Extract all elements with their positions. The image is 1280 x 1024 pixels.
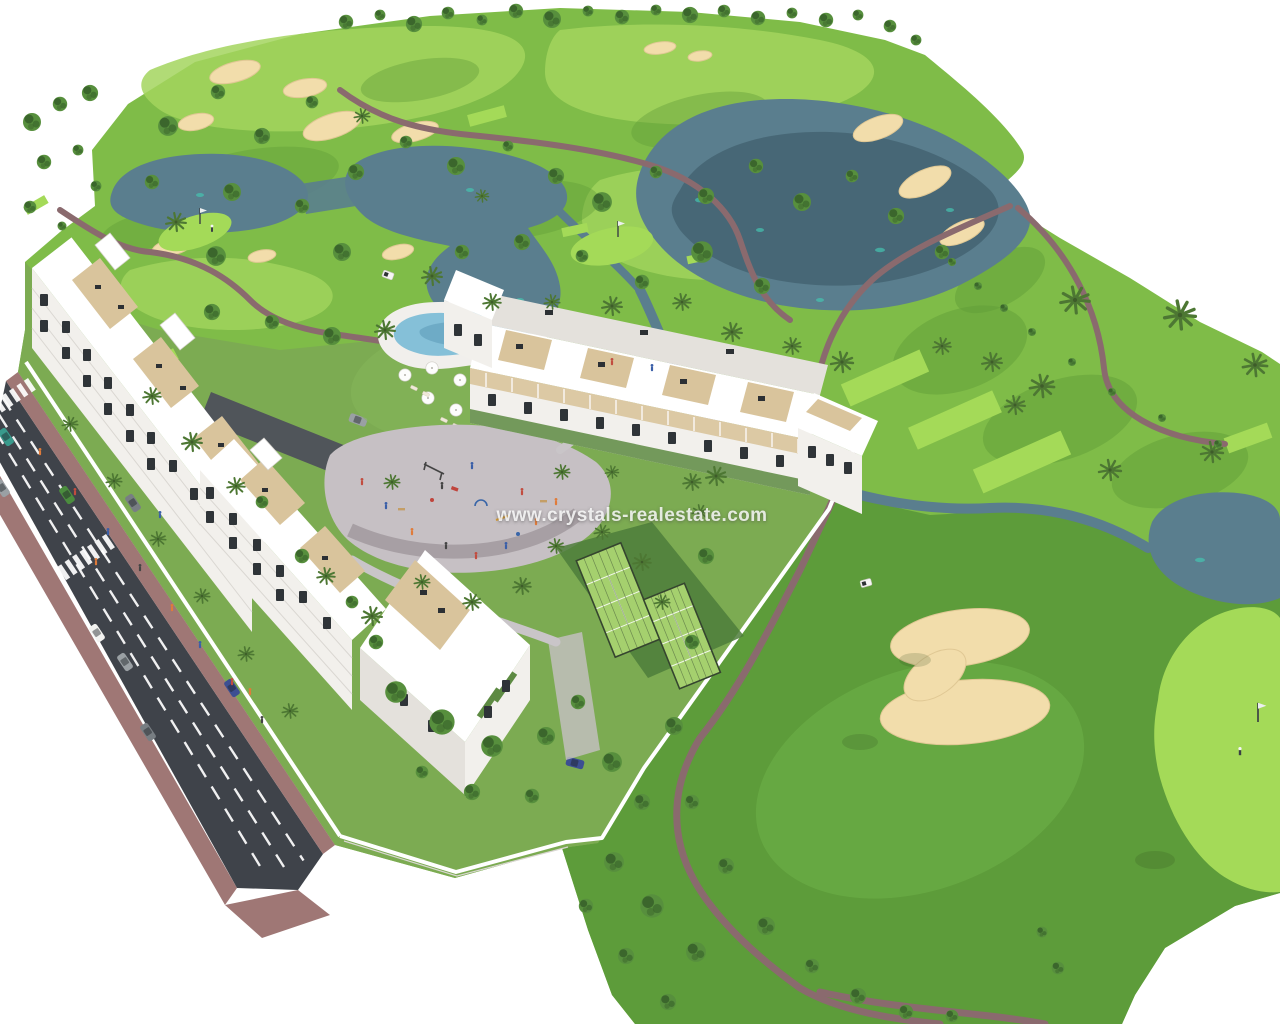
tree [805, 959, 819, 973]
window [323, 617, 331, 629]
pedestrian [505, 542, 508, 549]
pedestrian [139, 564, 142, 571]
tree [635, 275, 649, 289]
bush [1108, 388, 1116, 396]
window [454, 324, 462, 336]
window [62, 347, 70, 359]
window [704, 440, 712, 452]
window [299, 591, 307, 603]
pedestrian [249, 688, 252, 695]
roof-furniture [438, 608, 445, 613]
tree [385, 681, 407, 703]
roof-furniture [545, 310, 553, 315]
window [808, 446, 816, 458]
window [147, 458, 155, 470]
tree [447, 157, 465, 175]
tree [543, 10, 561, 28]
tree [91, 181, 102, 192]
tree [754, 278, 770, 294]
tree [503, 141, 514, 152]
pedestrian [231, 678, 234, 685]
tree [348, 164, 364, 180]
roof-furniture [640, 330, 648, 335]
window [776, 455, 784, 467]
tree [665, 717, 683, 735]
tree [718, 5, 731, 18]
pedestrian [159, 511, 162, 518]
roof-furniture [218, 443, 224, 447]
tree [718, 858, 734, 874]
tree [537, 727, 555, 745]
pedestrian [411, 528, 414, 535]
window [169, 460, 177, 472]
tree [548, 168, 564, 184]
tree [787, 8, 798, 19]
tree [295, 199, 309, 213]
roof-furniture [598, 362, 605, 367]
window [484, 706, 492, 718]
pedestrian [445, 542, 448, 549]
tree [853, 10, 864, 21]
pedestrian [95, 558, 98, 565]
tree [793, 193, 811, 211]
tree [698, 188, 714, 204]
tree [306, 96, 319, 109]
pedestrian [535, 518, 538, 525]
roof-furniture [156, 364, 162, 368]
bush [1158, 414, 1166, 422]
tree [634, 794, 650, 810]
sidewalk-wrap [225, 890, 330, 938]
tree [23, 113, 41, 131]
tree [509, 4, 523, 18]
tree [37, 155, 51, 169]
pedestrian [521, 488, 524, 495]
tree [935, 245, 949, 259]
bush [1068, 358, 1076, 366]
window [83, 349, 91, 361]
pedestrian [74, 488, 77, 495]
tree [158, 116, 178, 136]
tree [650, 166, 663, 179]
window [147, 432, 155, 444]
tree [571, 695, 585, 709]
window [40, 294, 48, 306]
tree [749, 159, 763, 173]
roof-furniture [758, 396, 765, 401]
pedestrian [385, 502, 388, 509]
roof-furniture [516, 344, 523, 349]
window [104, 377, 112, 389]
tree [333, 243, 351, 261]
tree [514, 234, 530, 250]
tree [884, 20, 897, 33]
window [126, 404, 134, 416]
window [524, 402, 532, 414]
sun-umbrella [450, 404, 462, 416]
window [502, 680, 510, 692]
window [276, 589, 284, 601]
tree [846, 170, 859, 183]
bush [1214, 440, 1222, 448]
tree [640, 894, 663, 917]
tree [375, 10, 386, 21]
tree [416, 766, 429, 779]
window [229, 513, 237, 525]
tree [82, 85, 98, 101]
tree [295, 549, 309, 563]
pedestrian [171, 604, 174, 611]
tree [211, 85, 225, 99]
tree [455, 245, 469, 259]
window [126, 430, 134, 442]
tree [899, 1005, 913, 1019]
roof-furniture [118, 305, 124, 309]
tree [751, 11, 765, 25]
tree [579, 899, 593, 913]
window [229, 537, 237, 549]
pedestrian [199, 641, 202, 648]
window [826, 454, 834, 466]
roof-furniture [420, 590, 427, 595]
tree [346, 596, 359, 609]
window [253, 563, 261, 575]
tree [602, 752, 622, 772]
tree [442, 7, 455, 20]
golfer [211, 225, 214, 232]
tree [604, 852, 624, 872]
window [206, 487, 214, 499]
tree [911, 35, 922, 46]
roof-furniture [726, 349, 734, 354]
tree [477, 15, 488, 26]
window [40, 320, 48, 332]
pedestrian [261, 716, 264, 723]
window [474, 334, 482, 346]
window [62, 321, 70, 333]
tree [682, 7, 698, 23]
tree [757, 917, 775, 935]
sun-umbrella [454, 374, 466, 386]
window [253, 539, 261, 551]
roof-furniture [262, 488, 268, 492]
tree [819, 13, 833, 27]
roof-furniture [180, 386, 186, 390]
tree [223, 183, 241, 201]
bush [1028, 328, 1036, 336]
pedestrian [39, 448, 42, 455]
tree [406, 16, 422, 32]
tree [615, 10, 629, 24]
window [632, 424, 640, 436]
tree [1037, 927, 1048, 938]
tree [685, 635, 699, 649]
tree [576, 250, 589, 263]
window [740, 447, 748, 459]
bush [974, 282, 982, 290]
window [276, 565, 284, 577]
tree [660, 994, 676, 1010]
tree [429, 709, 454, 734]
sun-umbrella [399, 369, 411, 381]
window [206, 511, 214, 523]
window [488, 394, 496, 406]
resort-render-canvas [0, 0, 1280, 1024]
tree [685, 795, 699, 809]
tree [583, 6, 594, 17]
window [560, 409, 568, 421]
roof-furniture [95, 285, 101, 289]
pedestrian [107, 528, 110, 535]
pedestrian [475, 552, 478, 559]
pedestrian [441, 482, 444, 489]
bush [1000, 304, 1008, 312]
window [190, 488, 198, 500]
tree [24, 201, 37, 214]
tree [592, 192, 612, 212]
tree [73, 145, 84, 156]
tree [400, 136, 413, 149]
roof-furniture [680, 379, 687, 384]
pedestrian [611, 358, 614, 365]
tree [850, 988, 866, 1004]
tree [145, 175, 159, 189]
tree [698, 548, 714, 564]
tree [686, 942, 706, 962]
tree [323, 327, 341, 345]
tree [206, 246, 226, 266]
pedestrian [651, 364, 654, 371]
tree [339, 15, 353, 29]
tree [651, 5, 662, 16]
tree [53, 97, 67, 111]
roof-furniture [322, 556, 328, 560]
pedestrian [361, 478, 364, 485]
tree [464, 784, 480, 800]
tree [946, 1010, 959, 1023]
tree [58, 222, 67, 231]
tree [691, 241, 713, 263]
pedestrian [555, 498, 558, 505]
tree [204, 304, 220, 320]
window [104, 403, 112, 415]
tree [888, 208, 904, 224]
tree [369, 635, 383, 649]
tree [481, 735, 503, 757]
tree [265, 315, 279, 329]
tree [1052, 962, 1065, 975]
golfer [1238, 747, 1241, 755]
window [844, 462, 852, 474]
window [668, 432, 676, 444]
window [83, 375, 91, 387]
render-image: www.crystals-realestate.com [0, 0, 1280, 1024]
window [596, 417, 604, 429]
tree [525, 789, 539, 803]
tree [254, 128, 270, 144]
tree [618, 948, 634, 964]
pedestrian [471, 462, 474, 469]
tree [256, 496, 269, 509]
sun-umbrella [426, 362, 438, 374]
bush [948, 258, 956, 266]
